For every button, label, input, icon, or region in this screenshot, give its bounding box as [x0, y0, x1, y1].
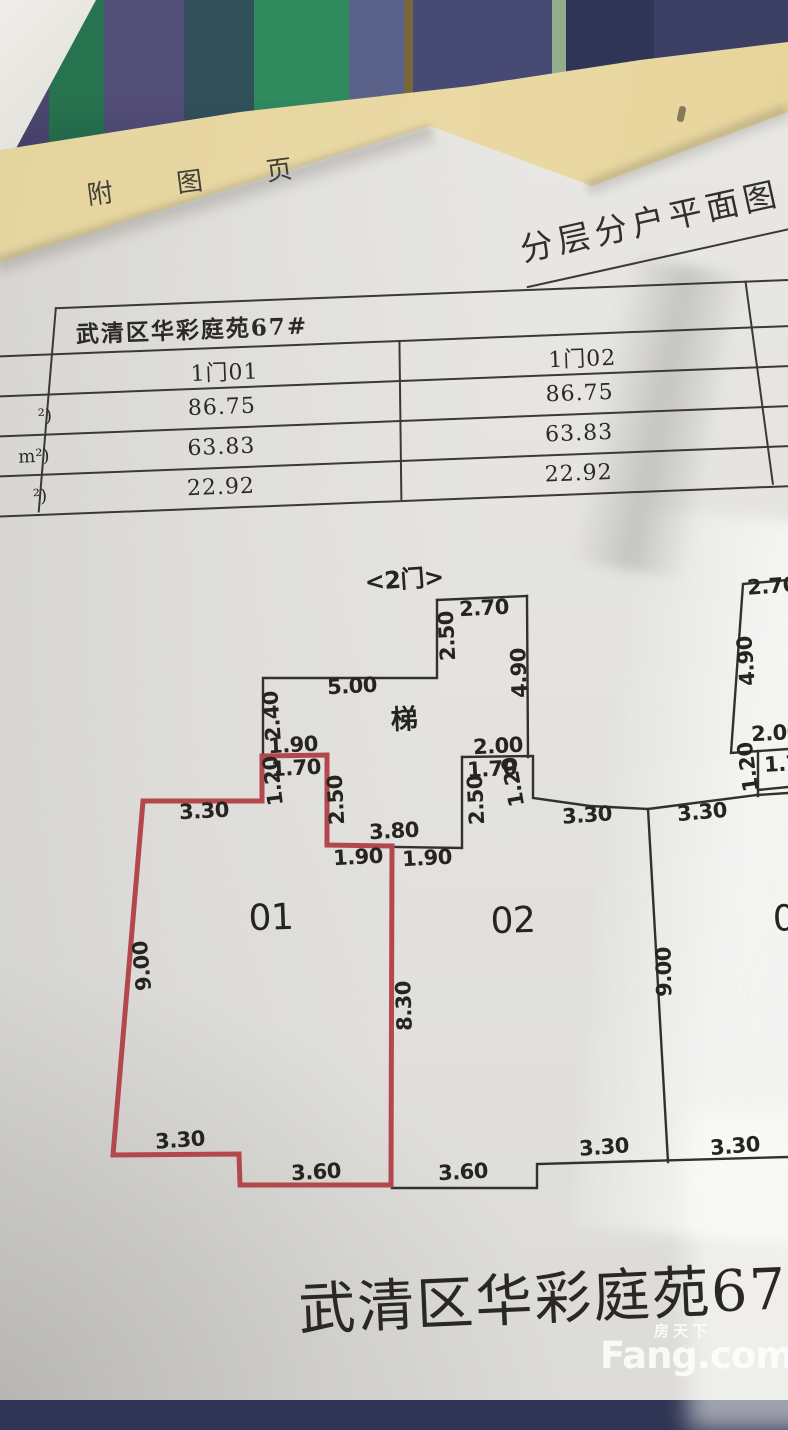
red-unit-outline — [113, 755, 392, 1185]
watermark: 房天下 Fang.com — [600, 1324, 788, 1374]
floor-plan-walls — [0, 0, 788, 1400]
watermark-logo: Fang.com — [600, 1337, 788, 1374]
black-walls — [263, 580, 788, 1188]
